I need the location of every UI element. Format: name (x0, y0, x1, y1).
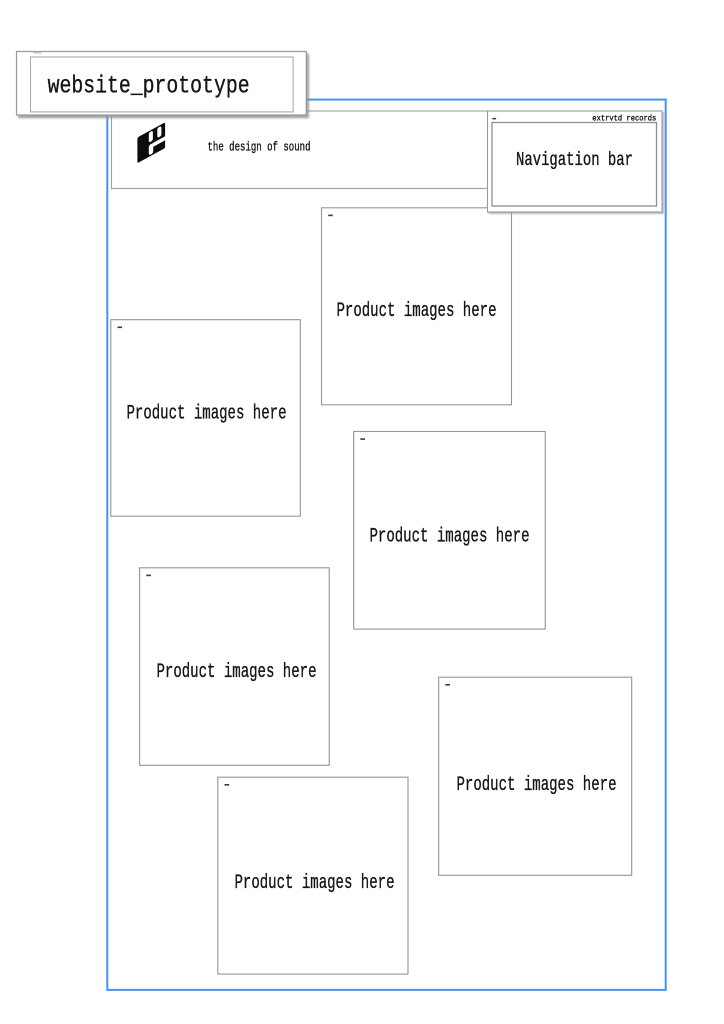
svg-text:Product images here: Product images here (235, 872, 395, 895)
svg-text:the design of sound: the design of sound (208, 140, 311, 155)
svg-text:Product images here: Product images here (127, 403, 287, 426)
svg-text:Product images here: Product images here (337, 300, 497, 323)
svg-text:Product images here: Product images here (157, 661, 317, 684)
svg-text:website_prototype: website_prototype (48, 72, 250, 101)
svg-text:Product images here: Product images here (370, 526, 530, 549)
svg-text:Product images here: Product images here (457, 774, 617, 797)
svg-text:Navigation bar: Navigation bar (516, 149, 633, 171)
